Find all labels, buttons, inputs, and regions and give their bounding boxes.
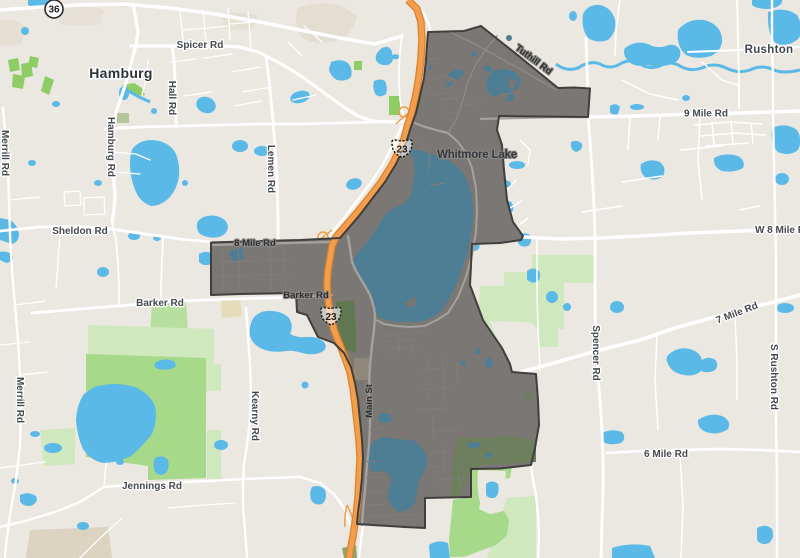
svg-text:23: 23: [325, 312, 337, 323]
svg-text:W 8 Mile Rd: W 8 Mile Rd: [755, 225, 800, 236]
svg-text:Hamburg Rd: Hamburg Rd: [105, 117, 116, 177]
svg-text:Merrill Rd: Merrill Rd: [0, 130, 10, 176]
svg-text:Hall Rd: Hall Rd: [166, 81, 177, 115]
svg-text:Jennings Rd: Jennings Rd: [122, 481, 182, 492]
svg-text:Hamburg: Hamburg: [89, 65, 153, 81]
svg-text:6 Mile Rd: 6 Mile Rd: [644, 449, 688, 460]
svg-text:Whitmore Lake: Whitmore Lake: [437, 149, 517, 161]
svg-text:Barker Rd: Barker Rd: [136, 298, 184, 309]
svg-text:Lemen Rd: Lemen Rd: [265, 145, 276, 193]
svg-text:Spencer Rd: Spencer Rd: [590, 325, 601, 381]
svg-text:8 Mile Rd: 8 Mile Rd: [234, 238, 276, 249]
svg-text:Rushton: Rushton: [745, 44, 794, 56]
svg-text:23: 23: [396, 144, 408, 155]
svg-text:Kearny Rd: Kearny Rd: [249, 391, 260, 441]
svg-text:S Rushton Rd: S Rushton Rd: [768, 344, 779, 410]
svg-text:Sheldon Rd: Sheldon Rd: [52, 226, 108, 237]
svg-text:36: 36: [48, 5, 60, 16]
svg-text:Merrill Rd: Merrill Rd: [14, 377, 25, 423]
svg-text:9 Mile Rd: 9 Mile Rd: [684, 109, 728, 120]
svg-text:Barker Rd: Barker Rd: [283, 290, 329, 301]
svg-text:Main St: Main St: [364, 383, 375, 418]
svg-text:Spicer Rd: Spicer Rd: [177, 40, 224, 51]
